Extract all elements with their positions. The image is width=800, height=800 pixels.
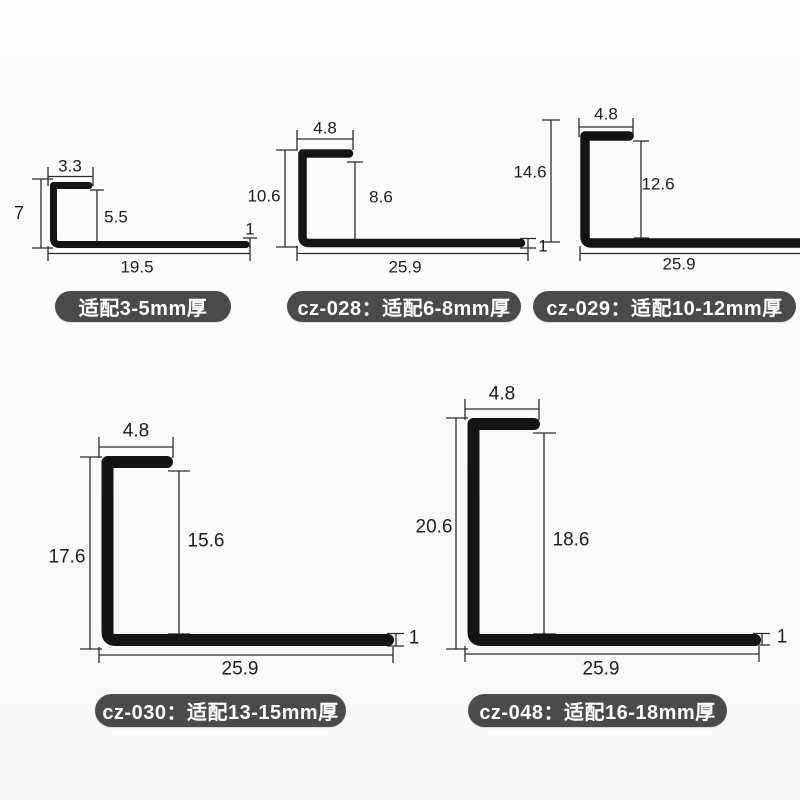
dim-label-top-width: 3.3 — [58, 158, 82, 175]
dim-label-inner-height: 18.6 — [553, 531, 590, 550]
dim-label-thickness: 1 — [538, 238, 547, 255]
dim-label-outer-height: 17.6 — [49, 548, 86, 567]
dim-label-inner-height: 15.6 — [188, 532, 225, 551]
dim-label-bottom-width: 19.5 — [120, 259, 153, 276]
badge-cz-030: cz-030：适配13-15mm厚 — [95, 694, 346, 727]
dim-label-inner-height: 8.6 — [369, 189, 393, 206]
dim-label-thickness: 1 — [777, 628, 788, 647]
badge-cz-028: cz-028：适配6-8mm厚 — [287, 291, 521, 322]
profile-3-shape — [585, 136, 800, 243]
profile-5-dimension-lines — [446, 399, 770, 662]
dim-label-inner-height: 5.5 — [104, 209, 128, 226]
dim-label-outer-height: 14.6 — [513, 164, 546, 181]
dim-label-thickness: 1 — [409, 629, 420, 648]
badge-cz-048: cz-048：适配16-18mm厚 — [468, 694, 727, 727]
dim-label-bottom-width: 25.9 — [388, 259, 421, 276]
dim-label-outer-height: 20.6 — [416, 518, 453, 537]
profile-5-shape — [474, 424, 756, 640]
dim-label-top-width: 4.8 — [313, 120, 337, 137]
profile-1-shape — [54, 186, 247, 245]
profile-4-dimension-lines — [80, 437, 404, 663]
dim-label-inner-height: 12.6 — [641, 176, 674, 193]
dim-label-outer-height: 7 — [14, 204, 24, 222]
dim-label-bottom-width: 25.9 — [662, 256, 695, 273]
profile-size-diagram: 3.3 7 5.5 19.5 1 4.8 10.6 8.6 25.9 1 4.8… — [0, 0, 800, 800]
profile-4-shape — [108, 462, 389, 640]
profile-2-shape — [303, 154, 522, 244]
dim-label-bottom-width: 25.9 — [583, 660, 620, 679]
badge-cz-029: cz-029：适配10-12mm厚 — [533, 291, 796, 322]
badge-3-5mm: 适配3-5mm厚 — [55, 291, 231, 322]
diagram-lines — [0, 0, 800, 800]
dim-label-thickness: 1 — [245, 221, 254, 238]
dim-label-top-width: 4.8 — [489, 385, 515, 404]
dim-label-bottom-width: 25.9 — [222, 660, 259, 679]
dim-label-top-width: 4.8 — [123, 422, 149, 441]
dim-label-top-width: 4.8 — [594, 106, 618, 123]
dim-label-outer-height: 10.6 — [247, 188, 280, 205]
